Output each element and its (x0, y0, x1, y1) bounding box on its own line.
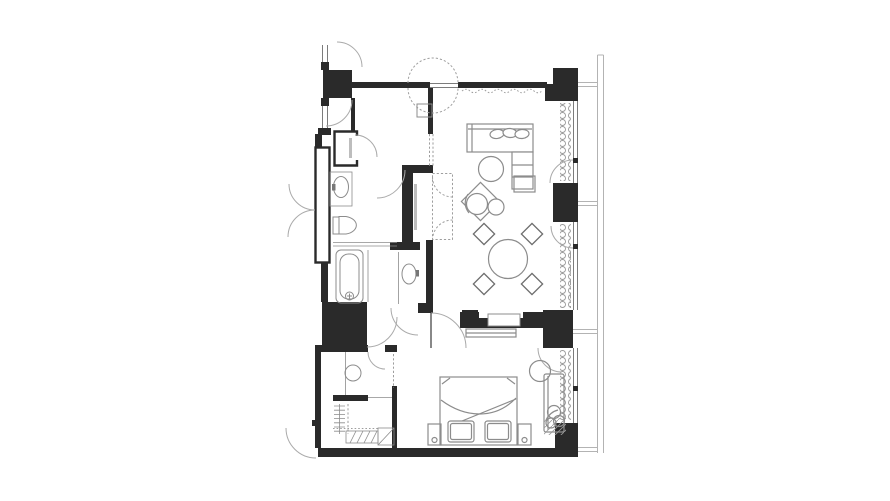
dining-chair (473, 273, 494, 294)
wall-elbow-a (318, 128, 331, 135)
nightstand-right (518, 424, 531, 445)
window-right-living (574, 101, 578, 183)
window-jamb (573, 244, 578, 249)
facade-connector-bottom (578, 448, 597, 452)
service-shaft (316, 148, 330, 263)
closet-right-wall (392, 386, 397, 448)
closet-divider-wall (333, 395, 368, 401)
facade-connector-mid1 (578, 202, 597, 206)
wall-elbow-b (315, 134, 322, 148)
door-swing-arc (337, 42, 362, 67)
living-room-furniture (461, 124, 542, 295)
double-bed (440, 377, 517, 445)
top-wall-left (352, 82, 430, 88)
second-washbasin (399, 252, 420, 304)
left-wall-lower (315, 348, 321, 448)
bedroom-door-jamb-left (418, 303, 433, 313)
window-jamb (573, 386, 578, 391)
rack-diagonal-ticks (350, 431, 377, 443)
window-right-bedroom (574, 348, 578, 423)
dining-set (473, 223, 542, 294)
ottoman (488, 199, 504, 215)
exterior-door-arc (289, 184, 315, 210)
nightstand-left (428, 424, 441, 445)
door-swing-arc (355, 135, 377, 157)
l-shaped-sofa (467, 124, 533, 189)
door-swing-arc (391, 308, 418, 335)
window-right-dining (574, 222, 578, 310)
dining-chair (473, 223, 494, 244)
lounge-chair-seat (467, 194, 488, 215)
column-right-mid (553, 183, 578, 222)
media-console (466, 329, 516, 337)
exterior-door-arc (288, 210, 315, 237)
entry-door-dashed-arc-top (408, 58, 458, 83)
tub-faucet-cross (347, 294, 352, 299)
sofa-chaise (512, 152, 533, 189)
washbasin (334, 177, 349, 198)
left-wall-mid (321, 263, 328, 302)
column-right-lower (543, 310, 573, 348)
vanity-washbasin (330, 172, 352, 206)
curtain-dining (560, 224, 571, 308)
door-swing-arc (368, 352, 385, 369)
dashed-wardrobe (433, 174, 453, 240)
washbasin (402, 264, 416, 284)
bathroom-shelf (333, 243, 397, 247)
window-jamb (321, 98, 329, 106)
lamp (432, 438, 437, 443)
toilet-tank (333, 217, 339, 234)
luggage-rack-diagonal (378, 428, 394, 445)
wc-top-wall-b (385, 345, 397, 352)
faucet (416, 270, 420, 277)
facade-connector-mid2 (573, 330, 597, 334)
floor-plan-page (0, 0, 890, 501)
window-jamb (321, 62, 329, 70)
curtain-track-wavy (462, 89, 542, 93)
nightstand (428, 424, 441, 445)
curtain-living (560, 103, 571, 181)
top-wall-right (458, 82, 547, 88)
round-dining-table (489, 240, 528, 279)
column-top-left (323, 70, 352, 98)
round-coffee-table (479, 157, 504, 182)
entry-closet-rail (349, 138, 352, 158)
door-swing-arc (377, 170, 405, 198)
bathtub (336, 250, 363, 303)
round-fixture (345, 365, 361, 381)
column-top-right (545, 68, 578, 101)
wc-room (345, 352, 392, 398)
curtain-bedroom (560, 350, 571, 420)
wc-top-wall-a (315, 345, 368, 352)
tv-cabinet (488, 314, 520, 326)
vestibule-dashed-opening (430, 134, 434, 166)
bottom-wall (318, 448, 578, 457)
dashed-wardrobe-door-top (433, 177, 453, 197)
dining-chair (521, 223, 542, 244)
entry-opening-lines (430, 84, 458, 88)
column-left-big (322, 302, 367, 348)
floor-plan-drawing (0, 0, 890, 501)
dashed-wardrobe-door-bottom (433, 220, 453, 240)
window-jamb (573, 158, 578, 163)
lamp (522, 438, 527, 443)
facade-connector-top (578, 83, 597, 87)
luggage-rack (378, 428, 394, 445)
outer-line-right (598, 55, 604, 453)
door-swing-arc (326, 100, 352, 126)
nightstand (518, 424, 531, 445)
exterior-door-arc (286, 428, 316, 458)
toilet-bowl (339, 217, 356, 235)
toilet (333, 217, 356, 235)
round-side-table (530, 361, 551, 382)
bathroom-fixtures (330, 104, 432, 398)
door-jamb-bottom-left (312, 420, 320, 426)
entry-closet (335, 132, 358, 166)
door-swing-arc (367, 317, 397, 347)
wc-partition-line (346, 352, 393, 398)
faucet (332, 184, 336, 191)
corridor-mirror (414, 184, 417, 230)
closet-details (334, 404, 394, 445)
dining-chair (521, 273, 542, 294)
living-left-wall-lower (426, 240, 433, 310)
